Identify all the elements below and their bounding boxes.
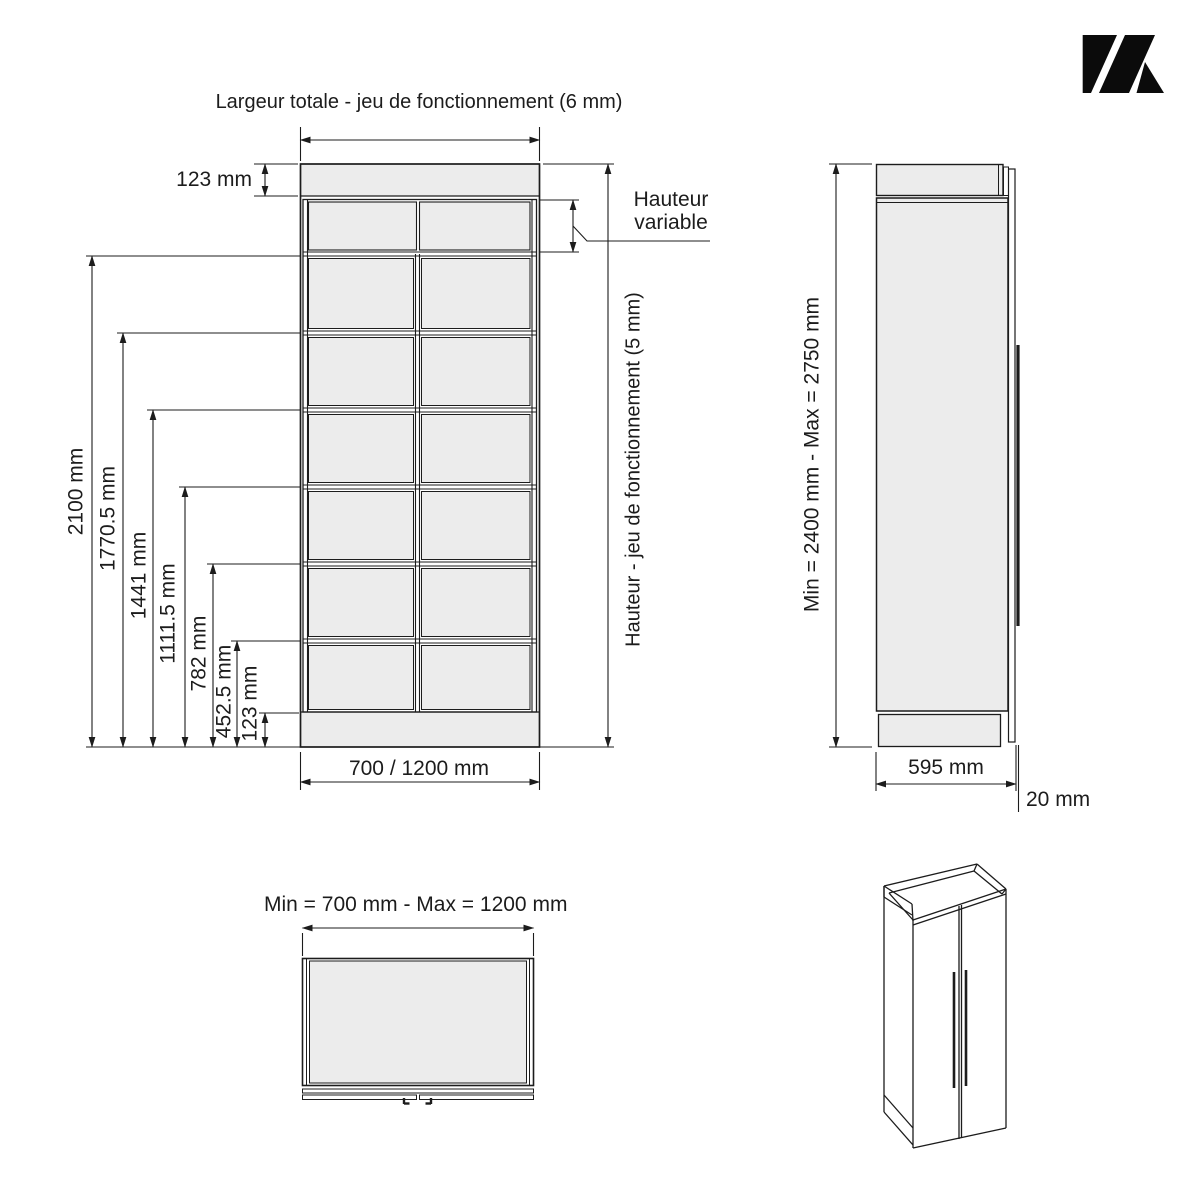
kazed-logo	[1083, 35, 1164, 93]
variable-height-line2: variable	[611, 211, 731, 234]
side-height-range-label: Min = 2400 mm - Max = 2750 mm	[801, 235, 824, 675]
top-view-drawing	[303, 959, 534, 1105]
side-view-drawing	[877, 165, 1019, 747]
height-clearance-label: Hauteur - jeu de fonctionnement (5 mm)	[623, 250, 646, 690]
top-view-width-range-label: Min = 700 mm - Max = 1200 mm	[264, 893, 564, 916]
height-dim-label-123: 123 mm	[239, 594, 262, 814]
height-dim-label-782: 782 mm	[188, 544, 211, 764]
height-dim-label-1111: 1111.5 mm	[157, 504, 180, 724]
height-dim-label-1441: 1441 mm	[128, 466, 151, 686]
side-depth-dim-label: 595 mm	[896, 756, 996, 779]
height-dim-label-1770: 1770.5 mm	[97, 409, 120, 629]
front-width-dim-label: 700 / 1200 mm	[319, 757, 519, 780]
front-view-title: Largeur totale - jeu de fonctionnement (…	[169, 91, 669, 114]
door-thickness-dim-label: 20 mm	[1026, 788, 1116, 811]
height-dim-label-452: 452.5 mm	[213, 582, 236, 802]
perspective-view-drawing	[884, 864, 1006, 1148]
variable-height-label: Hauteur variable	[611, 188, 731, 234]
cornice-height-dim-label: 123 mm	[130, 168, 252, 191]
front-view-drawing	[301, 164, 540, 747]
height-dim-label-2100: 2100 mm	[65, 382, 88, 602]
variable-height-line1: Hauteur	[611, 188, 731, 211]
top-view-dimensions	[303, 928, 534, 956]
technical-drawing-sheet: Largeur totale - jeu de fonctionnement (…	[0, 0, 1200, 1200]
